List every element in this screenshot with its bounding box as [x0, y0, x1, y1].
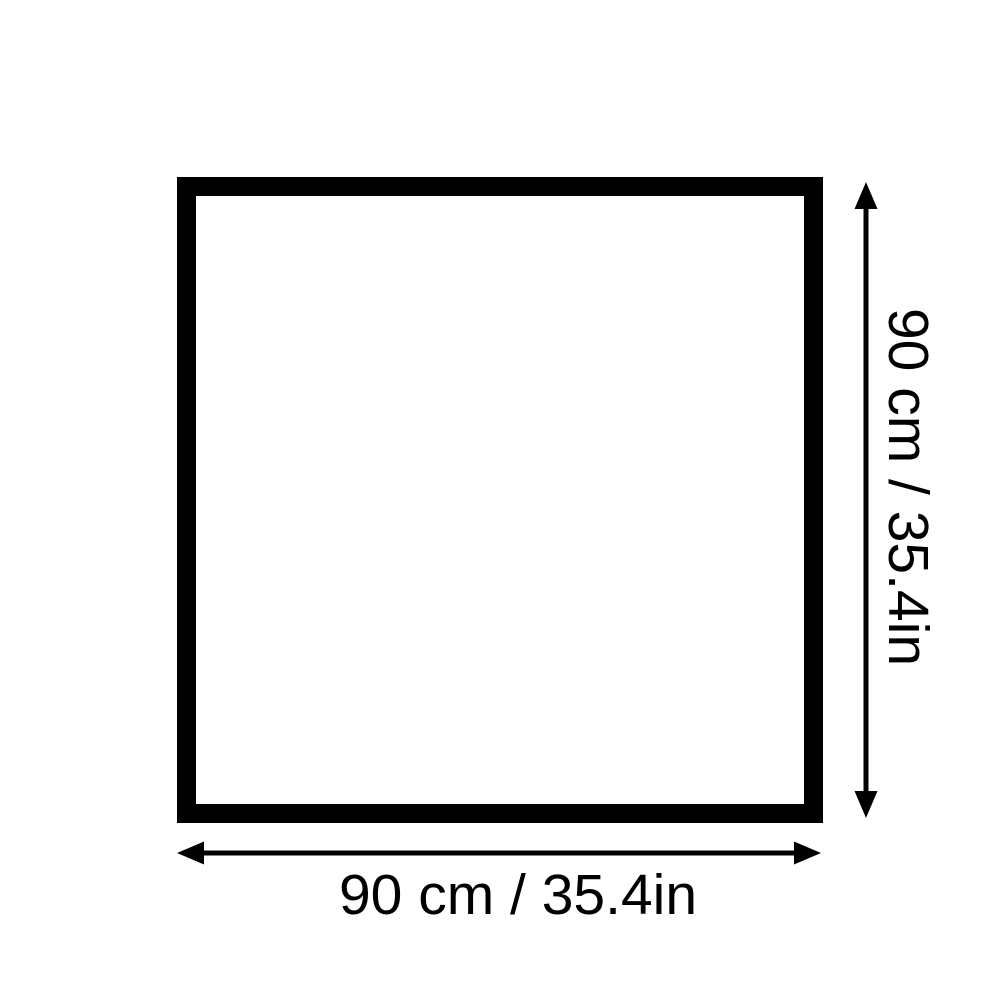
width-dimension-label: 90 cm / 35.4in: [268, 866, 768, 924]
product-outline-square: [177, 177, 823, 823]
dimension-diagram: 90 cm / 35.4in 90 cm / 35.4in: [0, 0, 1000, 1000]
down-arrowhead-icon: [855, 791, 878, 818]
height-dimension-label: 90 cm / 35.4in: [879, 287, 937, 687]
right-arrowhead-icon: [794, 842, 821, 865]
